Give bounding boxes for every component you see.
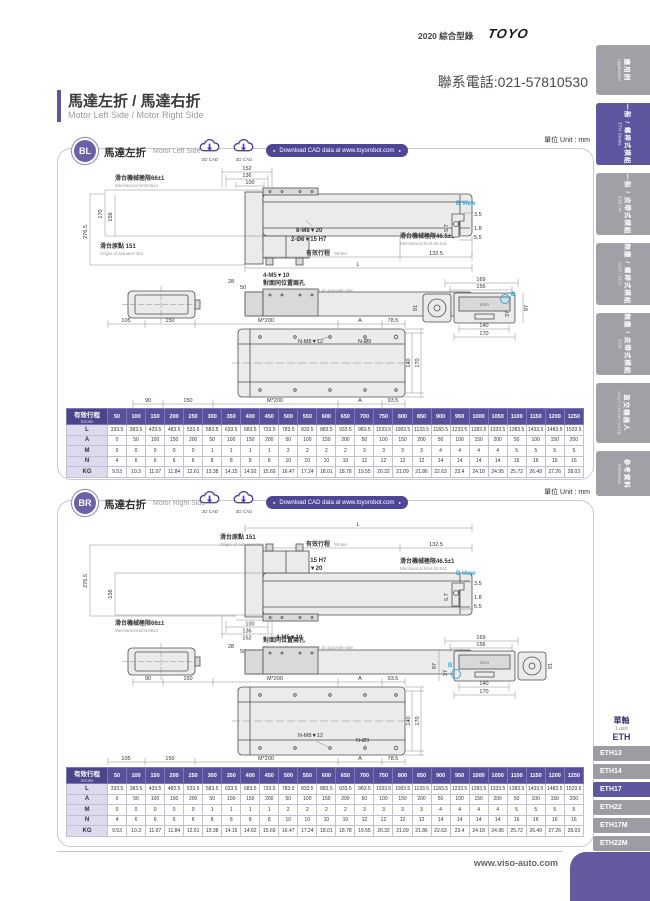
- table-cell: 14: [469, 456, 488, 467]
- table-cell: 150: [545, 794, 564, 805]
- table-cell: 1483.5: [545, 425, 564, 436]
- table-cell: 10: [317, 456, 336, 467]
- table-row: KG9.5310.311.0711.8412.6113.3814.1514.92…: [67, 467, 584, 478]
- table-header-cell: 150: [146, 409, 165, 425]
- dim-label: 28: [228, 279, 234, 285]
- table-cell: 0: [146, 446, 165, 457]
- br-cross-section: 169 156 TOYO 97 37 B 91 140 170: [432, 635, 554, 699]
- table-cell: 10: [336, 815, 355, 826]
- table-cell: 50: [127, 794, 146, 805]
- table-cell: 10: [279, 815, 298, 826]
- dim-label: 170: [98, 209, 104, 218]
- dim-label: 156: [476, 642, 485, 648]
- table-cell: 27.26: [545, 467, 564, 478]
- cad-2d-download-button[interactable]: 2D CAD: [196, 491, 224, 514]
- bl-drawing: 152 136 100 滑台機械極限66±1 Mechanical limit:…: [60, 164, 590, 409]
- table-cell: 17.24: [298, 826, 317, 837]
- table-cell: 1533.5: [564, 425, 583, 436]
- cloud-download-icon: [231, 491, 257, 506]
- table-row: A050100150200501001502005010015020050100…: [67, 435, 584, 446]
- table-cell: 14: [431, 456, 450, 467]
- table-cell: 18.01: [317, 467, 336, 478]
- table-cell: 10: [279, 456, 298, 467]
- dim-label: 1.8: [474, 226, 482, 232]
- sidebar-tab-6[interactable]: 直交機器人XYGT / XYTH / XYTB: [596, 383, 650, 443]
- hole-callout: 2-Ø6▼15 H7: [291, 237, 327, 243]
- table-cell: 14.15: [222, 467, 241, 478]
- table-cell: 1333.5: [488, 425, 507, 436]
- table-cell: 1033.5: [374, 784, 393, 795]
- table-cell: 23.4: [450, 826, 469, 837]
- table-cell: 3: [374, 446, 393, 457]
- table-cell: 0: [165, 446, 184, 457]
- dim-label: 276.5: [83, 574, 89, 588]
- dim-label: 152: [242, 166, 251, 172]
- table-cell: 100: [526, 435, 545, 446]
- table-cell: 150: [317, 794, 336, 805]
- dim-label: L: [356, 262, 359, 268]
- table-row-label: A: [67, 435, 108, 446]
- title-accent-bar: [57, 90, 61, 122]
- table-cell: 483.5: [165, 425, 184, 436]
- b-view-title: B View: [456, 201, 476, 207]
- corner-accent-block: [570, 852, 650, 901]
- table-cell: 3: [412, 446, 431, 457]
- unit-label-br: 單位 Unit : mm: [544, 487, 590, 497]
- table-cell: 150: [241, 794, 260, 805]
- table-cell: 25.72: [507, 467, 526, 478]
- table-cell: 8: [260, 815, 279, 826]
- dim-label: 156: [476, 284, 485, 290]
- table-cell: 883.5: [317, 425, 336, 436]
- table-cell: 16.47: [279, 467, 298, 478]
- table-cell: 1233.5: [450, 784, 469, 795]
- table-header-cell: 1250: [564, 768, 583, 784]
- table-cell: 200: [184, 435, 203, 446]
- dim-label: 1.8: [474, 595, 482, 601]
- table-header-cell: 900: [431, 768, 450, 784]
- dim-label: M*200: [258, 756, 274, 762]
- mech-limit-465-label-en: Mechanical limit:46.5±1: [400, 241, 447, 246]
- table-cell: 1: [203, 805, 222, 816]
- table-cell: 150: [165, 435, 184, 446]
- table-header-cell: 450: [260, 768, 279, 784]
- br-drawing: L 滑台原點 151 Origin of actuator:151 有效行程 S…: [60, 515, 590, 765]
- table-cell: 15.69: [260, 467, 279, 478]
- table-cell: 50: [127, 435, 146, 446]
- dim-label: 5.7: [444, 224, 450, 232]
- table-cell: 50: [431, 794, 450, 805]
- table-cell: 1133.5: [412, 425, 431, 436]
- dim-label: 156: [108, 212, 114, 221]
- table-cell: 1383.5: [507, 425, 526, 436]
- table-cell: 9.53: [108, 826, 127, 837]
- table-cell: 6: [165, 815, 184, 826]
- table-cell: 533.5: [184, 425, 203, 436]
- table-cell: 27.26: [545, 826, 564, 837]
- sidebar-tabs: 應用例Application一般 / 螺桿式模組ETH Series一般 / 皮…: [596, 45, 650, 496]
- dim-label: 100: [245, 622, 254, 628]
- dim-label: 5.7: [444, 593, 450, 601]
- table-cell: 24.95: [488, 467, 507, 478]
- table-cell: 1283.5: [469, 425, 488, 436]
- table-header-cell: 700: [355, 409, 374, 425]
- table-header-cell: 650: [336, 409, 355, 425]
- dim-label: 140: [479, 681, 488, 687]
- sidebar-tab-4[interactable]: 無塵 / 螺桿式模組GCH / ECH: [596, 243, 650, 305]
- table-header-cell: 1000: [469, 409, 488, 425]
- table-row: M0000011112222333344445555: [67, 446, 584, 457]
- table-cell: 11.84: [165, 467, 184, 478]
- axis-series-label: ETH: [593, 732, 650, 742]
- table-header-cell: 700: [355, 768, 374, 784]
- hole-callout: N-Ø9: [358, 339, 371, 345]
- section-title-en: Motor Left Side: [153, 148, 200, 155]
- table-header-cell: 200: [165, 768, 184, 784]
- table-header-cell: 1150: [526, 409, 545, 425]
- table-cell: 100: [222, 794, 241, 805]
- mech-limit-465-label: 滑台機械極限46.5±1: [400, 232, 455, 240]
- table-header-cell: 1150: [526, 768, 545, 784]
- table-cell: 1483.5: [545, 784, 564, 795]
- table-cell: 383.5: [127, 425, 146, 436]
- table-cell: 28.03: [564, 467, 583, 478]
- table-cell: 17.24: [298, 467, 317, 478]
- dim-label: 37: [443, 670, 449, 676]
- table-cell: 10.3: [127, 826, 146, 837]
- table-cell: 1033.5: [374, 425, 393, 436]
- page-title: 馬達左折 / 馬達右折: [68, 90, 201, 111]
- table-cell: 50: [355, 435, 374, 446]
- model-item-ETH22[interactable]: ETH22: [593, 800, 650, 815]
- table-cell: 150: [393, 794, 412, 805]
- table-cell: 1333.5: [488, 784, 507, 795]
- table-cell: 12: [355, 456, 374, 467]
- dim-label: 140: [479, 323, 488, 329]
- table-cell: 10: [317, 815, 336, 826]
- table-row: A050100150200501001502005010015020050100…: [67, 794, 584, 805]
- dim-label: 150: [165, 756, 174, 762]
- table-header-cell: 500: [279, 768, 298, 784]
- br-side-view: L 滑台原點 151 Origin of actuator:151 有效行程 S…: [83, 522, 472, 642]
- table-cell: 4: [450, 805, 469, 816]
- table-cell: 50: [431, 435, 450, 446]
- table-row-label: M: [67, 446, 108, 457]
- dim-label: 50: [240, 285, 246, 291]
- dim-label: 105: [121, 756, 130, 762]
- dim-label: L: [356, 522, 359, 528]
- table-cell: 10: [336, 456, 355, 467]
- table-header-cell: 350: [222, 409, 241, 425]
- hole-callout: 4-M5▼10: [263, 273, 290, 279]
- table-cell: 20.32: [374, 826, 393, 837]
- cad-2d-label: 2D CAD: [196, 509, 224, 514]
- table-cell: 6: [184, 456, 203, 467]
- table-cell: 6: [127, 815, 146, 826]
- sidebar-tab-5[interactable]: 無塵 / 皮帶式模組ECB: [596, 313, 650, 375]
- table-cell: 16: [526, 815, 545, 826]
- table-cell: 0: [165, 805, 184, 816]
- table-cell: 14: [488, 456, 507, 467]
- table-cell: 200: [488, 794, 507, 805]
- table-cell: 733.5: [260, 784, 279, 795]
- table-cell: 1133.5: [412, 784, 431, 795]
- table-cell: 18.78: [336, 467, 355, 478]
- table-header-cell: 1000: [469, 768, 488, 784]
- cloud-download-icon: [231, 139, 257, 154]
- table-cell: 483.5: [165, 784, 184, 795]
- hole-callout: 8-M8▼20: [296, 228, 323, 234]
- table-cell: 2: [298, 446, 317, 457]
- model-item-ETH17[interactable]: ETH17: [593, 782, 650, 797]
- table-cell: 0: [108, 446, 127, 457]
- dim-label: 90: [145, 398, 151, 404]
- table-cell: 200: [564, 435, 583, 446]
- dim-label: 170: [415, 358, 421, 367]
- table-cell: 6: [146, 456, 165, 467]
- cloud-download-icon: [197, 491, 223, 506]
- dim-label: 150: [165, 318, 174, 324]
- table-cell: 22.63: [431, 467, 450, 478]
- table-cell: 12.61: [184, 826, 203, 837]
- table-cell: 200: [184, 794, 203, 805]
- table-cell: 21.09: [393, 467, 412, 478]
- mech-limit-66-label: 滑台機械極限66±1: [115, 619, 165, 627]
- table-cell: 10: [298, 456, 317, 467]
- table-cell: 1: [222, 805, 241, 816]
- bl-top-view: 28 50 4-M5▼10 對面同位置兩孔 2 holes on the sam…: [108, 273, 472, 408]
- catalog-page: 2020 綜合型錄 TOYO 聯系電話:021-57810530 馬達左折 / …: [0, 0, 650, 901]
- cad-3d-download-button[interactable]: 3D CAD: [230, 139, 258, 162]
- table-cell: 0: [127, 446, 146, 457]
- table-cell: 783.5: [279, 784, 298, 795]
- table-header-cell: 950: [450, 409, 469, 425]
- model-item-ETH14[interactable]: ETH14: [593, 764, 650, 779]
- mech-limit-465-label-en: Mechanical limit:46.5±1: [400, 566, 447, 571]
- sidebar-tab-7[interactable]: 參考資料Reference: [596, 451, 650, 496]
- table-cell: 0: [108, 805, 127, 816]
- table-cell: 1433.5: [526, 784, 545, 795]
- table-cell: 0: [146, 805, 165, 816]
- dim-label: 136: [242, 629, 251, 635]
- table-cell: 6: [127, 456, 146, 467]
- table-cell: 8: [203, 456, 222, 467]
- table-cell: 0: [127, 805, 146, 816]
- table-cell: 14.92: [241, 826, 260, 837]
- table-cell: 150: [317, 435, 336, 446]
- table-header-cell: 750: [374, 409, 393, 425]
- table-cell: 100: [298, 435, 317, 446]
- dim-label: 170: [415, 716, 421, 725]
- table-cell: 10: [298, 815, 317, 826]
- table-cell: 100: [146, 435, 165, 446]
- dim-label: 152: [242, 636, 251, 642]
- table-header-cell: 450: [260, 409, 279, 425]
- axis-nav: 單軸 1 axis ETH ETH13ETH14ETH17ETH22ETH17M…: [593, 715, 650, 854]
- table-cell: 14.15: [222, 826, 241, 837]
- dim-label: 28: [228, 644, 234, 650]
- dim-label: 140: [406, 358, 412, 367]
- table-cell: 12: [374, 815, 393, 826]
- table-cell: 4: [431, 446, 450, 457]
- table-cell: 200: [564, 794, 583, 805]
- model-item-ETH13[interactable]: ETH13: [593, 746, 650, 761]
- table-header-cell: 800: [393, 768, 412, 784]
- dim-label: M*200: [258, 318, 274, 324]
- model-list: ETH13ETH14ETH17ETH22ETH17METH22M: [593, 746, 650, 851]
- table-cell: 583.5: [203, 784, 222, 795]
- stroke-label-en: Stroke: [334, 542, 348, 547]
- table-cell: 1: [241, 805, 260, 816]
- table-header-cell: 550: [298, 409, 317, 425]
- table-cell: 50: [203, 794, 222, 805]
- table-header-cell: 250: [184, 768, 203, 784]
- model-item-ETH22M[interactable]: ETH22M: [593, 836, 650, 851]
- dim-label: 136: [242, 173, 251, 179]
- table-header-cell: 600: [317, 409, 336, 425]
- table-cell: 150: [469, 794, 488, 805]
- table-header-cell: 1050: [488, 768, 507, 784]
- table-cell: 100: [222, 435, 241, 446]
- dim-label: 78.5: [388, 318, 399, 324]
- table-cell: 11.07: [146, 467, 165, 478]
- opposite-holes-label: 對面同位置兩孔: [263, 636, 305, 644]
- stroke-table-br: 有效行程Stroke501001502002503003504004505005…: [66, 767, 584, 837]
- table-row: L333.5383.5433.5483.5533.5583.5633.5683.…: [67, 784, 584, 795]
- table-cell: 1183.5: [431, 784, 450, 795]
- table-cell: 1: [222, 446, 241, 457]
- dim-label: 78.5: [388, 756, 399, 762]
- table-row-label: M: [67, 805, 108, 816]
- table-cell: 683.5: [241, 425, 260, 436]
- dim-label: 93.5: [388, 398, 399, 404]
- table-header-cell: 350: [222, 768, 241, 784]
- table-cell: 100: [374, 794, 393, 805]
- table-cell: 150: [469, 435, 488, 446]
- table-cell: 733.5: [260, 425, 279, 436]
- table-cell: 24.95: [488, 826, 507, 837]
- table-cell: 883.5: [317, 784, 336, 795]
- table-cell: 6: [165, 456, 184, 467]
- table-cell: 100: [526, 794, 545, 805]
- table-cell: 18.78: [336, 826, 355, 837]
- unit-label-bl: 單位 Unit : mm: [544, 135, 590, 145]
- table-cell: 8: [260, 456, 279, 467]
- cloud-download-icon: [197, 139, 223, 154]
- table-cell: 1083.5: [393, 425, 412, 436]
- axis-label-zh: 單軸: [593, 715, 650, 726]
- table-cell: 6: [146, 815, 165, 826]
- table-cell: 5: [507, 446, 526, 457]
- table-cell: 1: [260, 446, 279, 457]
- table-cell: 21.86: [412, 467, 431, 478]
- table-cell: 150: [165, 794, 184, 805]
- sidebar-tab-1[interactable]: 應用例Application: [596, 45, 650, 95]
- table-row: KG9.5310.311.0711.8412.6113.3814.1514.92…: [67, 826, 584, 837]
- dim-label: 156: [108, 589, 114, 598]
- table-row-label: KG: [67, 826, 108, 837]
- table-cell: 12: [412, 815, 431, 826]
- cad-3d-download-button[interactable]: 3D CAD: [230, 491, 258, 514]
- table-header-cell: 100: [127, 409, 146, 425]
- dim-label: 105: [121, 318, 130, 324]
- table-cell: 12: [355, 815, 374, 826]
- table-cell: 1: [203, 446, 222, 457]
- b-marker-label: B: [448, 663, 453, 669]
- dim-label: 91: [413, 305, 419, 311]
- dim-label: 132.5: [429, 251, 443, 257]
- download-cad-button[interactable]: Download CAD data at www.toyorobot.com: [266, 496, 408, 509]
- table-cell: 5: [545, 446, 564, 457]
- table-cell: 5: [526, 805, 545, 816]
- cad-3d-label: 3D CAD: [230, 509, 258, 514]
- table-cell: 24.18: [469, 467, 488, 478]
- dim-label: 90: [145, 676, 151, 682]
- table-cell: 28.03: [564, 826, 583, 837]
- table-cell: 2: [317, 805, 336, 816]
- table-cell: 1233.5: [450, 425, 469, 436]
- table-row: L333.5383.5433.5483.5533.5583.5633.5683.…: [67, 425, 584, 436]
- table-cell: 533.5: [184, 784, 203, 795]
- table-cell: 200: [260, 435, 279, 446]
- table-cell: 8: [222, 815, 241, 826]
- dim-label: 5.5: [474, 604, 482, 610]
- table-header-cell: 150: [146, 768, 165, 784]
- table-cell: 14: [450, 456, 469, 467]
- table-row-label: L: [67, 784, 108, 795]
- table-cell: 383.5: [127, 784, 146, 795]
- table-cell: 13.38: [203, 826, 222, 837]
- origin-label: 滑台原點 151: [220, 533, 256, 541]
- table-cell: 10.3: [127, 467, 146, 478]
- sidebar-tab-3[interactable]: 一般 / 皮帶式模組ETB / M: [596, 173, 650, 235]
- b-view-title: B View: [456, 571, 476, 577]
- phone-number: 聯系電話:021-57810530: [438, 72, 588, 92]
- table-header-cell: 800: [393, 409, 412, 425]
- sidebar-tab-2[interactable]: 一般 / 螺桿式模組ETH Series: [596, 103, 650, 165]
- dim-label: 93.5: [388, 676, 399, 682]
- dim-label: 170: [479, 331, 488, 337]
- model-item-ETH17M[interactable]: ETH17M: [593, 818, 650, 833]
- table-cell: 12: [412, 456, 431, 467]
- table-header-cell: 400: [241, 768, 260, 784]
- table-cell: 583.5: [203, 425, 222, 436]
- download-cad-button[interactable]: Download CAD data at www.toyorobot.com: [266, 144, 408, 157]
- table-cell: 18.01: [317, 826, 336, 837]
- table-cell: 50: [355, 794, 374, 805]
- table-cell: 200: [412, 794, 431, 805]
- mech-limit-66-label-en: Mechanical limit:66±1: [115, 183, 159, 188]
- table-cell: 14.92: [241, 467, 260, 478]
- section-title-zh: 馬達左折: [104, 145, 146, 160]
- table-cell: 14: [488, 815, 507, 826]
- cad-2d-download-button[interactable]: 2D CAD: [196, 139, 224, 162]
- table-header-cell: 500: [279, 409, 298, 425]
- table-cell: 833.5: [298, 784, 317, 795]
- table-header-stroke: 有效行程Stroke: [67, 768, 108, 784]
- dim-label: M*200: [267, 398, 283, 404]
- bl-badge: BL: [74, 140, 96, 162]
- br-top-view: 對面同位置兩孔 2 holes on the same position at …: [108, 636, 472, 765]
- opposite-holes-label: 對面同位置兩孔: [263, 279, 305, 287]
- table-cell: 1083.5: [393, 784, 412, 795]
- table-cell: 5: [507, 805, 526, 816]
- table-cell: 2: [336, 805, 355, 816]
- table-cell: 25.72: [507, 826, 526, 837]
- table-cell: 2: [317, 446, 336, 457]
- table-header-stroke: 有效行程Stroke: [67, 409, 108, 425]
- table-cell: 100: [450, 794, 469, 805]
